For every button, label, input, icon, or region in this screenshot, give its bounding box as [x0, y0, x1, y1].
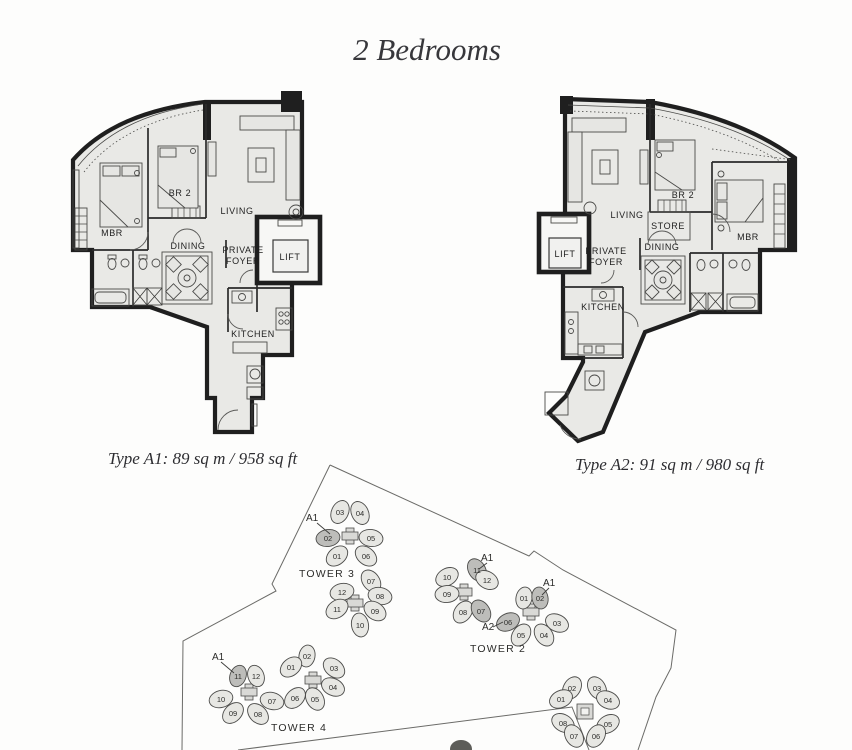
unit-number: 09 — [443, 590, 451, 599]
unit-number: 09 — [371, 607, 379, 616]
unit-number: 01 — [333, 552, 341, 561]
tower-3-callout-a1: A1 — [306, 513, 319, 524]
unit-number: 05 — [604, 720, 612, 729]
a2-mbr-bed-icon — [715, 171, 763, 231]
unit-number: 09 — [229, 709, 237, 718]
a1-mbr-bed-icon — [100, 163, 142, 227]
unit-number: 03 — [553, 619, 561, 628]
tower-4-callout-a1: A1 — [212, 652, 225, 663]
unit-number: 02 — [536, 594, 544, 603]
a2-room-label-br2: BR 2 — [672, 190, 694, 200]
unit-number: 04 — [540, 631, 548, 640]
unit-number: 02 — [324, 534, 332, 543]
unit-number: 06 — [504, 618, 512, 627]
a1-lift: LIFT — [257, 217, 320, 283]
unit-number: 06 — [592, 732, 600, 741]
a2-br2-bed-icon — [655, 140, 695, 190]
unit-number: 11 — [333, 605, 341, 614]
unit-number: 12 — [338, 588, 346, 597]
a1-room-label-br2: BR 2 — [169, 188, 191, 198]
a2-room-label-lift: LIFT — [555, 249, 576, 259]
unit-number: 10 — [217, 695, 225, 704]
unit-number: 03 — [330, 664, 338, 673]
tower-3-label: TOWER 3 — [299, 568, 355, 580]
tower-4-label: TOWER 4 — [271, 722, 327, 734]
unit-number: 01 — [557, 695, 565, 704]
unit-number: 02 — [303, 652, 311, 661]
a2-room-label-living: LIVING — [610, 210, 643, 220]
unit-number: 06 — [362, 552, 370, 561]
a1-room-label-foyer-1: PRIVATE — [222, 245, 263, 255]
a2-room-label-dining: DINING — [644, 242, 679, 252]
a2-room-label-foyer-1: PRIVATE — [585, 246, 626, 256]
unit-number: 10 — [443, 573, 451, 582]
a1-room-label-dining: DINING — [170, 241, 205, 251]
a1-room-label-lift: LIFT — [280, 252, 301, 262]
a2-room-label-foyer-2: FOYER — [589, 257, 623, 267]
a2-lift: LIFT — [539, 214, 589, 272]
a1-wall-block-top — [281, 91, 302, 112]
brochure-page: 2 Bedrooms LIFT — [0, 0, 852, 750]
unit-number: 08 — [459, 608, 467, 617]
page-canvas: 2 Bedrooms LIFT — [0, 0, 852, 750]
unit-number: 11 — [473, 566, 481, 575]
a1-room-label-living: LIVING — [220, 206, 253, 216]
caption-type-a1: Type A1: 89 sq m / 958 sq ft — [108, 449, 298, 468]
unit-number: 04 — [604, 696, 612, 705]
site-tower-4: 11 12 10 09 08 07 02 01 03 04 06 05 TOWE… — [207, 644, 348, 734]
unit-number: 02 — [568, 684, 576, 693]
unit-number: 08 — [559, 719, 567, 728]
site-tower-3: 03 04 02 05 01 06 07 12 08 11 09 10 TOWE… — [299, 498, 394, 639]
unit-number: 07 — [367, 577, 375, 586]
a2-room-label-store: STORE — [651, 221, 685, 231]
a1-room-label-foyer-2: FOYER — [226, 256, 260, 266]
unit-number: 04 — [356, 509, 364, 518]
unit-number: 07 — [570, 732, 578, 741]
site-map: 03 04 02 05 01 06 07 12 08 11 09 10 TOWE… — [182, 465, 676, 750]
unit-number: 07 — [268, 697, 276, 706]
tower-2-callout-a1-right: A1 — [543, 578, 556, 589]
unit-number: 03 — [336, 508, 344, 517]
unit-number: 12 — [483, 576, 491, 585]
a1-room-label-kitchen: KITCHEN — [231, 329, 275, 339]
tower-2-callout-a2: A2 — [482, 622, 495, 633]
a2-room-label-kitchen: KITCHEN — [581, 302, 625, 312]
unit-number: 01 — [520, 594, 528, 603]
unit-number: 08 — [376, 592, 384, 601]
site-tree-icon — [450, 740, 472, 750]
tower-2-label: TOWER 2 — [470, 643, 526, 655]
a1-wall-block-br2 — [203, 101, 211, 140]
unit-number: 06 — [291, 694, 299, 703]
caption-type-a2: Type A2: 91 sq m / 980 sq ft — [575, 455, 765, 474]
a2-room-label-mbr: MBR — [737, 232, 759, 242]
unit-number: 11 — [234, 672, 242, 681]
unit-number: 05 — [517, 631, 525, 640]
floor-plan-type-a2: LIFT — [539, 96, 796, 441]
unit-number: 10 — [356, 621, 364, 630]
a1-room-label-mbr: MBR — [101, 228, 123, 238]
unit-number: 12 — [252, 672, 260, 681]
tower-4-callout-leader — [221, 662, 234, 673]
unit-number: 07 — [477, 607, 485, 616]
tower-2-callout-a1-left: A1 — [481, 553, 494, 564]
unit-number: 03 — [593, 684, 601, 693]
floor-plan-type-a1: LIFT — [73, 91, 320, 432]
unit-number: 05 — [311, 695, 319, 704]
a1-br2-bed-icon — [158, 146, 198, 208]
a2-wall-block-mbr — [787, 158, 796, 250]
unit-number: 04 — [329, 683, 337, 692]
unit-number: 01 — [287, 663, 295, 672]
unit-number: 05 — [367, 534, 375, 543]
page-title: 2 Bedrooms — [353, 32, 501, 67]
site-tower-2: 11 12 10 09 08 07 01 02 03 06 05 04 TOWE… — [432, 553, 571, 655]
unit-number: 08 — [254, 710, 262, 719]
